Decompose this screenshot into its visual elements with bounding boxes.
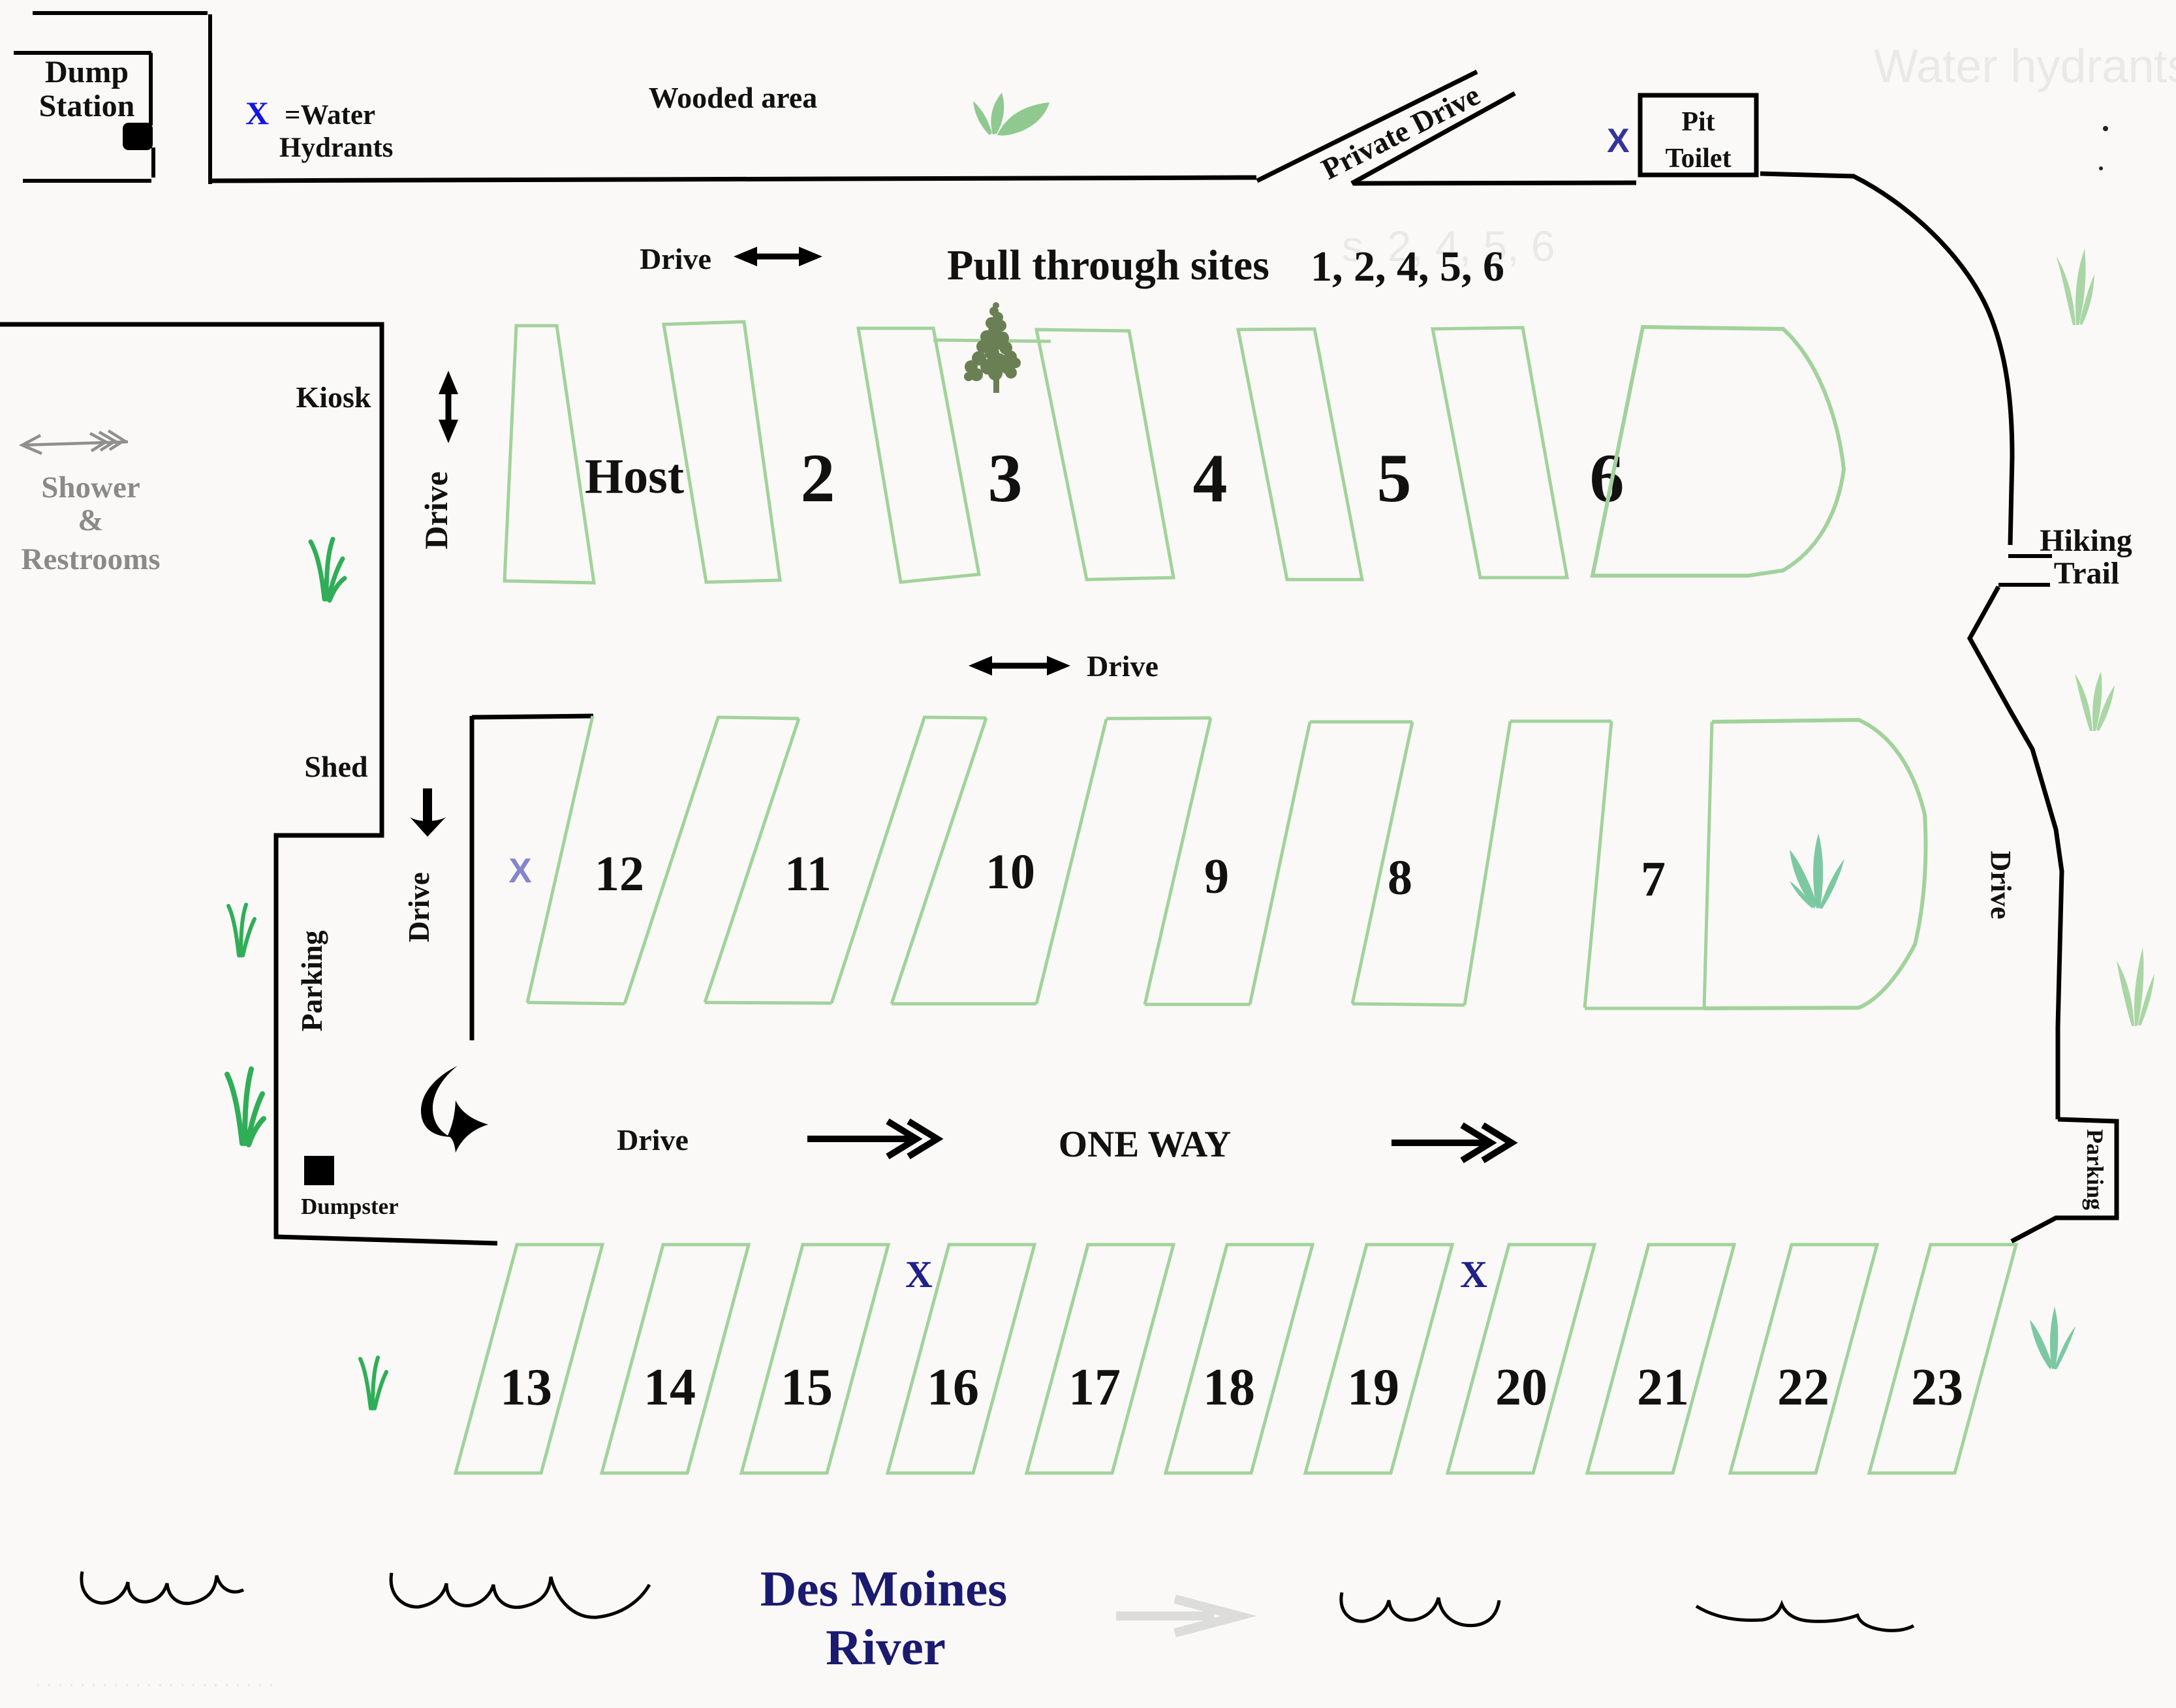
svg-text:5: 5 [1377, 440, 1412, 516]
svg-text:Water hydrants: Water hydrants [1874, 40, 2176, 93]
svg-text:Pull through sites: Pull through sites [947, 241, 1269, 289]
svg-text:16: 16 [927, 1359, 979, 1416]
svg-text:Drive: Drive [403, 872, 435, 942]
svg-text:Hydrants: Hydrants [279, 132, 393, 163]
svg-text:20: 20 [1495, 1359, 1547, 1416]
svg-text:X: X [905, 1253, 933, 1296]
svg-text:23: 23 [1911, 1359, 1963, 1416]
svg-text:22: 22 [1777, 1359, 1829, 1416]
svg-text:Toilet: Toilet [1665, 144, 1731, 174]
svg-text:13: 13 [500, 1359, 552, 1416]
svg-text:19: 19 [1347, 1359, 1399, 1416]
svg-text:Wooded area: Wooded area [649, 81, 818, 114]
svg-text:X: X [508, 852, 531, 890]
svg-text:14: 14 [644, 1359, 696, 1416]
svg-text:Drive: Drive [640, 242, 711, 275]
svg-text:Trail: Trail [2054, 556, 2119, 591]
svg-text:Hiking: Hiking [2040, 523, 2132, 558]
svg-text:=Water: =Water [285, 100, 375, 131]
svg-text:ONE WAY: ONE WAY [1059, 1124, 1232, 1165]
svg-text:River: River [826, 1619, 946, 1675]
svg-text:Pit: Pit [1681, 107, 1715, 137]
svg-text:10: 10 [986, 845, 1035, 899]
svg-text:Restrooms: Restrooms [21, 542, 160, 576]
svg-text:Dump: Dump [45, 55, 129, 89]
svg-text:X: X [1607, 122, 1630, 160]
svg-text:Drive: Drive [418, 471, 454, 549]
svg-text:18: 18 [1203, 1359, 1255, 1416]
svg-text:Parking: Parking [2082, 1129, 2108, 1210]
svg-text:1, 2, 4, 5, 6: 1, 2, 4, 5, 6 [1311, 243, 1504, 290]
svg-text:11: 11 [785, 846, 832, 901]
svg-text:8: 8 [1388, 850, 1412, 905]
svg-text:3: 3 [988, 440, 1023, 516]
svg-text:4: 4 [1193, 440, 1228, 516]
svg-text:&: & [78, 503, 103, 537]
svg-text:9: 9 [1204, 849, 1229, 904]
svg-text:Parking: Parking [296, 930, 328, 1032]
svg-text:Shower: Shower [41, 471, 140, 505]
svg-text:Kiosk: Kiosk [296, 380, 371, 414]
svg-text:21: 21 [1637, 1359, 1689, 1416]
svg-text:Drive: Drive [617, 1123, 689, 1157]
svg-text:Drive: Drive [1985, 850, 2017, 919]
svg-text:12: 12 [595, 846, 644, 901]
svg-text:2: 2 [801, 440, 835, 516]
svg-text:Dumpster: Dumpster [301, 1194, 399, 1219]
svg-text:7: 7 [1641, 852, 1666, 907]
svg-text:X: X [1460, 1253, 1487, 1296]
svg-text:Drive: Drive [1087, 649, 1158, 683]
svg-text:X: X [245, 95, 269, 131]
svg-text:Host: Host [585, 449, 684, 504]
svg-text:17: 17 [1068, 1359, 1121, 1416]
svg-text:15: 15 [781, 1359, 833, 1416]
svg-text:Des Moines: Des Moines [760, 1560, 1008, 1617]
svg-text:Station: Station [39, 89, 135, 123]
svg-text:Shed: Shed [304, 750, 368, 783]
